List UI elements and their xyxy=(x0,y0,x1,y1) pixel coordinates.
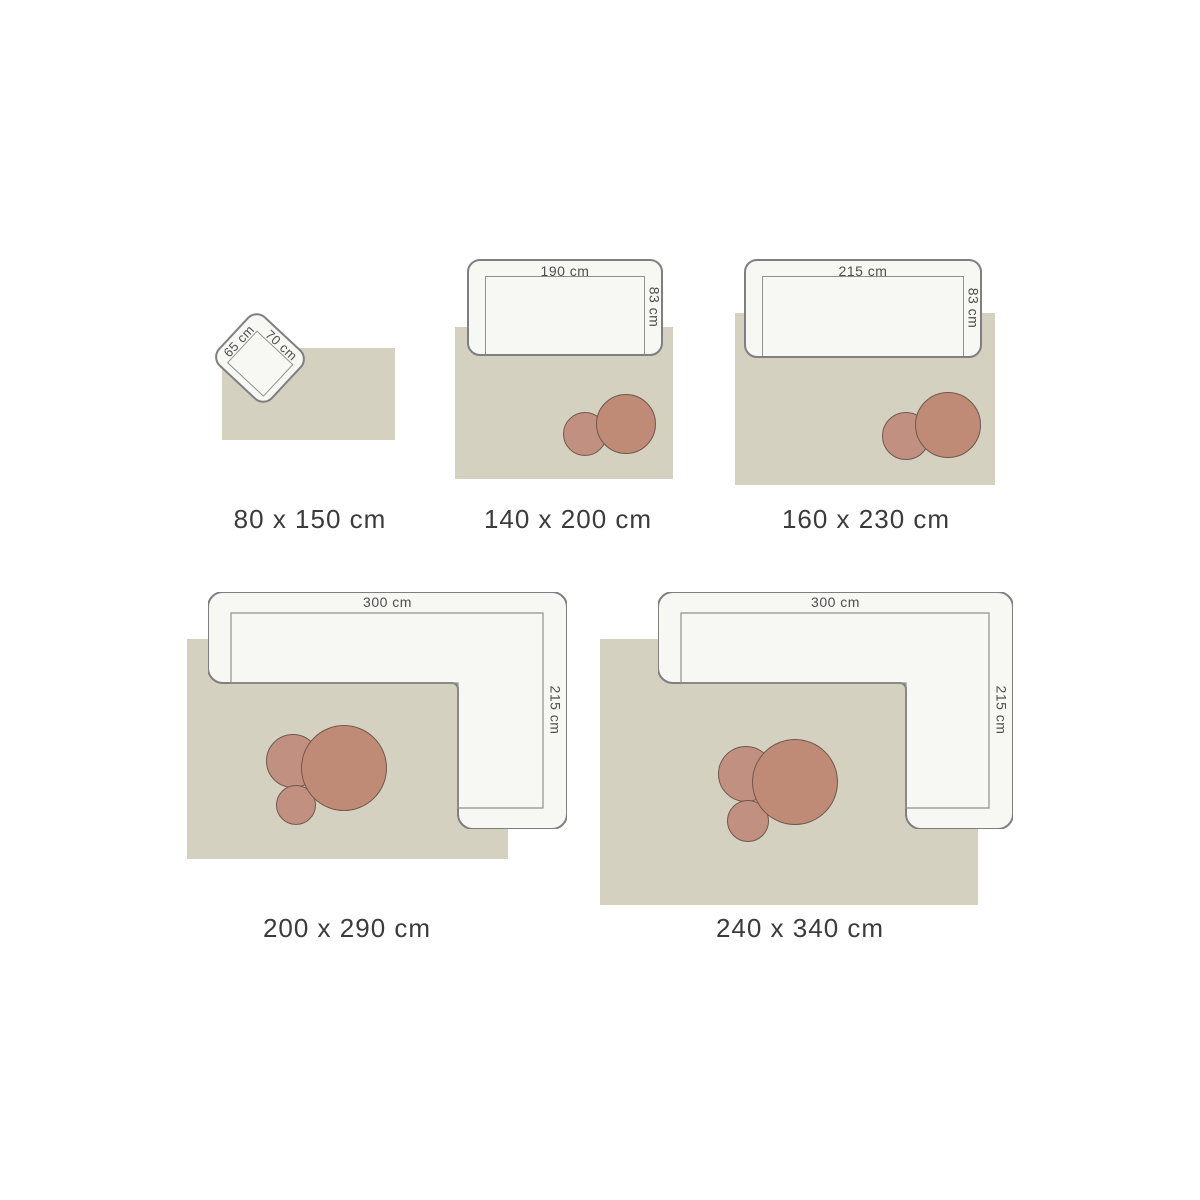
rug-size-group-240x340: 300 cm 215 cm 240 x 340 cm xyxy=(0,0,1200,1200)
side-table-circle-small xyxy=(882,412,930,460)
corner-sofa-top-view: 300 cm 215 cm xyxy=(658,592,1013,829)
corner-sofa-seat-outline xyxy=(231,613,543,808)
corner-sofa-width-label: 300 cm xyxy=(208,593,567,612)
rug-swatch-240x340 xyxy=(600,639,978,905)
rug-swatch-200x290 xyxy=(187,639,508,859)
side-table-circle-small xyxy=(276,785,316,825)
side-table-circle-medium xyxy=(718,746,774,802)
corner-sofa-depth-label: 215 cm xyxy=(992,686,1011,735)
sofa-top-view: 215 cm 83 cm xyxy=(744,259,982,358)
rug-size-label: 200 x 290 cm xyxy=(263,913,431,944)
rug-swatch-160x230 xyxy=(735,313,995,485)
rug-size-label: 80 x 150 cm xyxy=(234,504,387,535)
armchair-width-label: 65 cm xyxy=(219,321,259,362)
armchair-seat xyxy=(227,331,294,397)
sofa-seat xyxy=(485,276,645,354)
rug-size-group-80x150: 65 cm 70 cm 80 x 150 cm xyxy=(0,0,1200,1200)
armchair-depth-label: 70 cm xyxy=(261,325,302,365)
rug-size-guide: 65 cm 70 cm 80 x 150 cm 190 cm 83 cm 140… xyxy=(0,0,1200,1200)
side-table-circle-small xyxy=(727,800,769,842)
sofa-width-label: 215 cm xyxy=(746,262,980,281)
sofa-depth-label: 83 cm xyxy=(645,287,664,328)
sofa-depth-label: 83 cm xyxy=(964,288,983,329)
side-table-circle-large xyxy=(915,392,981,458)
rug-size-label: 140 x 200 cm xyxy=(484,504,652,535)
rug-size-group-200x290: 300 cm 215 cm 200 x 290 cm xyxy=(0,0,1200,1200)
side-table-circle-large xyxy=(301,725,387,811)
sofa-seat xyxy=(762,276,964,356)
sofa-top-view: 190 cm 83 cm xyxy=(467,259,663,356)
corner-sofa-width-label: 300 cm xyxy=(658,593,1013,612)
corner-sofa-shape xyxy=(658,592,1013,829)
corner-sofa-outline xyxy=(208,592,567,829)
rug-swatch-80x150 xyxy=(222,348,395,440)
rug-size-group-160x230: 215 cm 83 cm 160 x 230 cm xyxy=(0,0,1200,1200)
corner-sofa-outline xyxy=(658,592,1013,829)
sofa-width-label: 190 cm xyxy=(469,262,661,281)
corner-sofa-depth-label: 215 cm xyxy=(546,686,565,735)
rug-size-group-140x200: 190 cm 83 cm 140 x 200 cm xyxy=(0,0,1200,1200)
rug-size-label: 160 x 230 cm xyxy=(782,504,950,535)
side-table-circle-large xyxy=(752,739,838,825)
side-table-circle-medium xyxy=(266,734,320,788)
corner-sofa-top-view: 300 cm 215 cm xyxy=(208,592,567,829)
side-table-circle-large xyxy=(596,394,656,454)
armchair-top-view: 65 cm 70 cm xyxy=(210,308,310,408)
corner-sofa-seat-outline xyxy=(681,613,989,808)
rug-size-label: 240 x 340 cm xyxy=(716,913,884,944)
corner-sofa-shape xyxy=(208,592,567,829)
rug-swatch-140x200 xyxy=(455,327,673,479)
side-table-circle-small xyxy=(563,412,607,456)
